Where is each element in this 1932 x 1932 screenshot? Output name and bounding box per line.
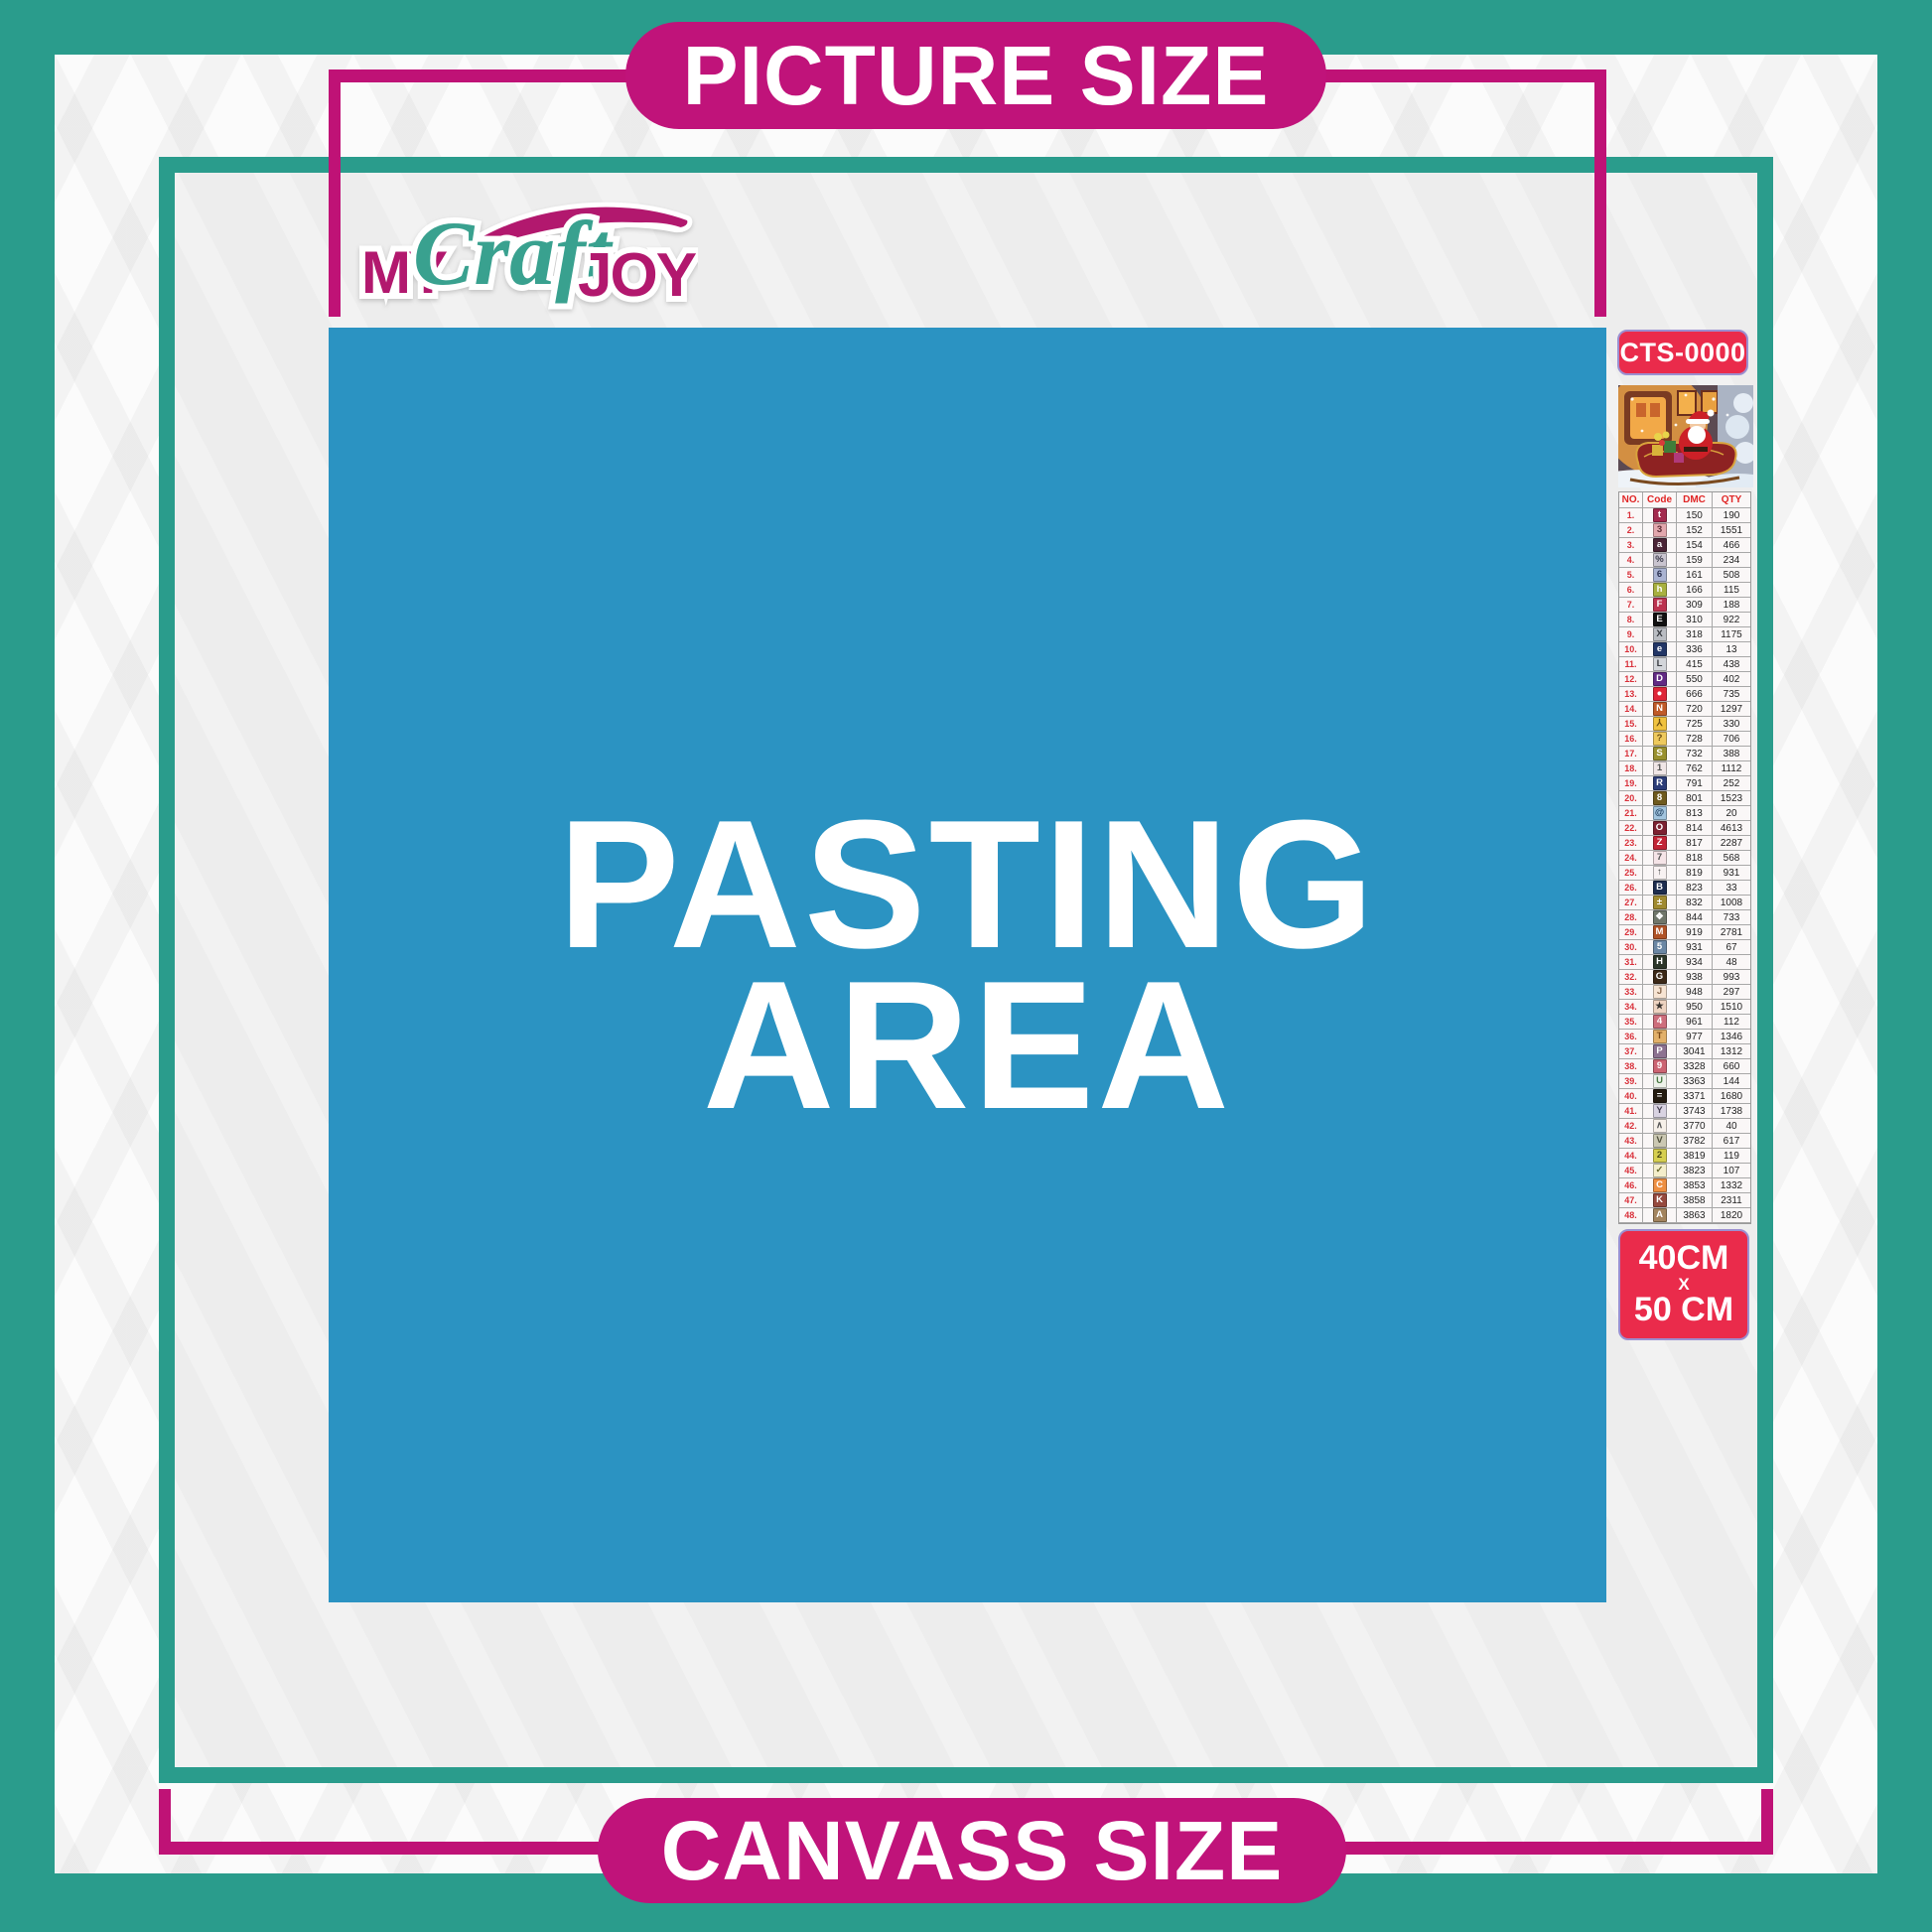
legend-cell-qty: 1112 [1713, 761, 1750, 776]
legend-header-code: Code [1643, 492, 1677, 508]
symbol-swatch: 2 [1653, 1149, 1667, 1163]
legend-row: 35.4961112 [1619, 1015, 1750, 1030]
legend-cell-dmc: 950 [1677, 1000, 1713, 1015]
legend-cell-qty: 2311 [1713, 1193, 1750, 1208]
legend-cell-code: ∧ [1643, 1119, 1677, 1134]
legend-cell-qty: 388 [1713, 747, 1750, 761]
legend-row: 7.F309188 [1619, 598, 1750, 613]
legend-cell-dmc: 844 [1677, 910, 1713, 925]
legend-row: 15.⅄725330 [1619, 717, 1750, 732]
legend-cell-dmc: 791 [1677, 776, 1713, 791]
legend-cell-no: 40. [1619, 1089, 1643, 1104]
legend-cell-dmc: 152 [1677, 523, 1713, 538]
legend-cell-no: 12. [1619, 672, 1643, 687]
symbol-swatch: Y [1653, 1104, 1667, 1118]
legend-cell-code: 1 [1643, 761, 1677, 776]
legend-cell-no: 17. [1619, 747, 1643, 761]
size-width: 40CM [1639, 1242, 1729, 1275]
legend-cell-qty: 297 [1713, 985, 1750, 1000]
legend-row: 24.7818568 [1619, 851, 1750, 866]
legend-cell-code: P [1643, 1044, 1677, 1059]
symbol-swatch: 7 [1653, 851, 1667, 865]
legend-cell-dmc: 823 [1677, 881, 1713, 896]
legend-cell-code: F [1643, 598, 1677, 613]
legend-cell-dmc: 666 [1677, 687, 1713, 702]
pasting-area-label-line2: AREA [703, 965, 1232, 1126]
symbol-swatch: % [1653, 553, 1667, 567]
legend-cell-code: A [1643, 1208, 1677, 1223]
legend-cell-qty: 33 [1713, 881, 1750, 896]
legend-cell-dmc: 550 [1677, 672, 1713, 687]
symbol-swatch: T [1653, 1030, 1667, 1043]
legend-cell-code: K [1643, 1193, 1677, 1208]
symbol-swatch: = [1653, 1089, 1667, 1103]
symbol-swatch: @ [1653, 806, 1667, 820]
legend-cell-no: 25. [1619, 866, 1643, 881]
legend-cell-qty: 568 [1713, 851, 1750, 866]
legend-cell-no: 31. [1619, 955, 1643, 970]
legend-row: 37.P30411312 [1619, 1044, 1750, 1059]
legend-cell-dmc: 832 [1677, 896, 1713, 910]
legend-cell-dmc: 813 [1677, 806, 1713, 821]
legend-cell-code: N [1643, 702, 1677, 717]
legend-cell-no: 22. [1619, 821, 1643, 836]
symbol-swatch: ❖ [1653, 910, 1667, 924]
legend-cell-no: 28. [1619, 910, 1643, 925]
legend-cell-qty: 40 [1713, 1119, 1750, 1134]
legend-cell-no: 1. [1619, 508, 1643, 523]
canvass-size-label: CANVASS SIZE [661, 1803, 1284, 1899]
symbol-swatch: ? [1653, 732, 1667, 746]
legend-cell-qty: 1312 [1713, 1044, 1750, 1059]
picture-frame-left-connector [329, 69, 628, 82]
symbol-swatch: G [1653, 970, 1667, 984]
legend-row: 31.H93448 [1619, 955, 1750, 970]
legend-cell-no: 33. [1619, 985, 1643, 1000]
legend-cell-no: 16. [1619, 732, 1643, 747]
legend-row: 41.Y37431738 [1619, 1104, 1750, 1119]
legend-cell-dmc: 3863 [1677, 1208, 1713, 1223]
legend-cell-dmc: 961 [1677, 1015, 1713, 1030]
legend-cell-qty: 48 [1713, 955, 1750, 970]
poster: PASTING AREA PICTURE SIZE CANVASS SIZE M… [0, 0, 1932, 1932]
legend-row: 6.h166115 [1619, 583, 1750, 598]
legend-header-row: NO. Code DMC QTY [1619, 492, 1750, 508]
legend-cell-dmc: 3328 [1677, 1059, 1713, 1074]
legend-cell-qty: 735 [1713, 687, 1750, 702]
legend-cell-code: ↑ [1643, 866, 1677, 881]
legend-cell-dmc: 720 [1677, 702, 1713, 717]
legend-cell-qty: 1738 [1713, 1104, 1750, 1119]
legend-cell-qty: 1346 [1713, 1030, 1750, 1044]
symbol-swatch: X [1653, 627, 1667, 641]
legend-cell-code: % [1643, 553, 1677, 568]
picture-frame-right-connector [1323, 69, 1606, 82]
symbol-swatch: h [1653, 583, 1667, 597]
symbol-swatch: ⅄ [1653, 717, 1667, 731]
canvass-size-banner: CANVASS SIZE [598, 1798, 1346, 1903]
symbol-swatch: e [1653, 642, 1667, 656]
legend-row: 13.●666735 [1619, 687, 1750, 702]
legend-cell-dmc: 150 [1677, 508, 1713, 523]
legend-cell-code: G [1643, 970, 1677, 985]
legend-cell-code: 6 [1643, 568, 1677, 583]
legend-cell-dmc: 3853 [1677, 1178, 1713, 1193]
legend-cell-qty: 733 [1713, 910, 1750, 925]
picture-frame-left-line [329, 69, 341, 317]
legend-cell-dmc: 948 [1677, 985, 1713, 1000]
picture-frame-right-line [1594, 69, 1606, 317]
canvas-size-badge: 40CM X 50 CM [1618, 1229, 1749, 1340]
legend-cell-code: V [1643, 1134, 1677, 1149]
legend-cell-no: 41. [1619, 1104, 1643, 1119]
legend-cell-code: h [1643, 583, 1677, 598]
legend-cell-dmc: 154 [1677, 538, 1713, 553]
legend-cell-code: 8 [1643, 791, 1677, 806]
legend-rows: 1.t1501902.315215513.a1544664.%1592345.6… [1619, 508, 1750, 1223]
legend-cell-no: 42. [1619, 1119, 1643, 1134]
symbol-swatch: 3 [1653, 523, 1667, 537]
legend-cell-qty: 1523 [1713, 791, 1750, 806]
legend-cell-dmc: 728 [1677, 732, 1713, 747]
legend-cell-no: 5. [1619, 568, 1643, 583]
legend-cell-code: 9 [1643, 1059, 1677, 1074]
legend-row: 40.=33711680 [1619, 1089, 1750, 1104]
legend-cell-code: M [1643, 925, 1677, 940]
legend-cell-no: 11. [1619, 657, 1643, 672]
legend-cell-no: 35. [1619, 1015, 1643, 1030]
symbol-swatch: ★ [1653, 1000, 1667, 1014]
legend-cell-qty: 617 [1713, 1134, 1750, 1149]
brand-logo: MY Craft JOY [355, 179, 698, 318]
legend-cell-qty: 1008 [1713, 896, 1750, 910]
symbol-swatch: 9 [1653, 1059, 1667, 1073]
legend-cell-qty: 144 [1713, 1074, 1750, 1089]
legend-cell-code: 3 [1643, 523, 1677, 538]
legend-cell-dmc: 817 [1677, 836, 1713, 851]
legend-cell-dmc: 159 [1677, 553, 1713, 568]
symbol-swatch: Z [1653, 836, 1667, 850]
legend-cell-dmc: 336 [1677, 642, 1713, 657]
symbol-swatch: 8 [1653, 791, 1667, 805]
legend-row: 14.N7201297 [1619, 702, 1750, 717]
legend-cell-qty: 13 [1713, 642, 1750, 657]
legend-cell-no: 18. [1619, 761, 1643, 776]
legend-cell-dmc: 318 [1677, 627, 1713, 642]
symbol-swatch: L [1653, 657, 1667, 671]
symbol-swatch: S [1653, 747, 1667, 760]
legend-row: 17.S732388 [1619, 747, 1750, 761]
legend-cell-dmc: 161 [1677, 568, 1713, 583]
legend-cell-no: 47. [1619, 1193, 1643, 1208]
legend-cell-dmc: 3371 [1677, 1089, 1713, 1104]
legend-row: 22.O8144613 [1619, 821, 1750, 836]
legend-row: 46.C38531332 [1619, 1178, 1750, 1193]
legend-cell-dmc: 762 [1677, 761, 1713, 776]
logo-word-joy: JOY [578, 241, 697, 310]
legend-cell-qty: 2781 [1713, 925, 1750, 940]
legend-row: 16.?728706 [1619, 732, 1750, 747]
legend-cell-qty: 1820 [1713, 1208, 1750, 1223]
legend-row: 12.D550402 [1619, 672, 1750, 687]
symbol-swatch: C [1653, 1178, 1667, 1192]
legend-cell-no: 45. [1619, 1164, 1643, 1178]
legend-cell-dmc: 310 [1677, 613, 1713, 627]
legend-cell-code: t [1643, 508, 1677, 523]
legend-cell-code: L [1643, 657, 1677, 672]
symbol-swatch: ↑ [1653, 866, 1667, 880]
legend-cell-no: 9. [1619, 627, 1643, 642]
picture-size-banner: PICTURE SIZE [625, 22, 1326, 129]
legend-cell-qty: 20 [1713, 806, 1750, 821]
legend-cell-code: Y [1643, 1104, 1677, 1119]
legend-row: 11.L415438 [1619, 657, 1750, 672]
legend-cell-code: B [1643, 881, 1677, 896]
legend-cell-qty: 67 [1713, 940, 1750, 955]
legend-cell-dmc: 919 [1677, 925, 1713, 940]
symbol-swatch: F [1653, 598, 1667, 612]
legend-cell-dmc: 3041 [1677, 1044, 1713, 1059]
legend-cell-qty: 1551 [1713, 523, 1750, 538]
legend-cell-code: e [1643, 642, 1677, 657]
legend-cell-qty: 438 [1713, 657, 1750, 672]
legend-cell-dmc: 977 [1677, 1030, 1713, 1044]
legend-cell-code: ✓ [1643, 1164, 1677, 1178]
legend-cell-dmc: 3782 [1677, 1134, 1713, 1149]
legend-row: 26.B82333 [1619, 881, 1750, 896]
legend-cell-qty: 402 [1713, 672, 1750, 687]
legend-row: 2.31521551 [1619, 523, 1750, 538]
legend-cell-qty: 188 [1713, 598, 1750, 613]
legend-cell-no: 20. [1619, 791, 1643, 806]
legend-row: 29.M9192781 [1619, 925, 1750, 940]
symbol-swatch: 5 [1653, 940, 1667, 954]
legend-cell-no: 48. [1619, 1208, 1643, 1223]
legend-cell-dmc: 934 [1677, 955, 1713, 970]
legend-cell-code: O [1643, 821, 1677, 836]
legend-cell-no: 10. [1619, 642, 1643, 657]
legend-cell-no: 44. [1619, 1149, 1643, 1164]
legend-cell-code: 4 [1643, 1015, 1677, 1030]
legend-row: 21.@81320 [1619, 806, 1750, 821]
legend-cell-no: 27. [1619, 896, 1643, 910]
legend-cell-no: 14. [1619, 702, 1643, 717]
legend-header-qty: QTY [1713, 492, 1750, 508]
legend-cell-dmc: 725 [1677, 717, 1713, 732]
legend-cell-no: 23. [1619, 836, 1643, 851]
legend-row: 33.J948297 [1619, 985, 1750, 1000]
symbol-swatch: H [1653, 955, 1667, 969]
legend-row: 42.∧377040 [1619, 1119, 1750, 1134]
legend-cell-no: 8. [1619, 613, 1643, 627]
legend-cell-code: ? [1643, 732, 1677, 747]
legend-row: 19.R791252 [1619, 776, 1750, 791]
legend-cell-code: 5 [1643, 940, 1677, 955]
symbol-swatch: ∧ [1653, 1119, 1667, 1133]
legend-cell-dmc: 166 [1677, 583, 1713, 598]
legend-cell-code: ★ [1643, 1000, 1677, 1015]
legend-row: 28.❖844733 [1619, 910, 1750, 925]
symbol-swatch: O [1653, 821, 1667, 835]
legend-cell-qty: 119 [1713, 1149, 1750, 1164]
legend-cell-qty: 115 [1713, 583, 1750, 598]
picture-size-label: PICTURE SIZE [683, 28, 1270, 124]
legend-cell-dmc: 818 [1677, 851, 1713, 866]
legend-row: 47.K38582311 [1619, 1193, 1750, 1208]
legend-row: 36.T9771346 [1619, 1030, 1750, 1044]
legend-cell-code: 2 [1643, 1149, 1677, 1164]
symbol-swatch: N [1653, 702, 1667, 716]
legend-cell-dmc: 732 [1677, 747, 1713, 761]
legend-cell-dmc: 3858 [1677, 1193, 1713, 1208]
product-code: CTS-0000 [1619, 338, 1745, 368]
legend-cell-qty: 252 [1713, 776, 1750, 791]
legend-row: 30.593167 [1619, 940, 1750, 955]
legend-cell-code: C [1643, 1178, 1677, 1193]
legend-cell-no: 26. [1619, 881, 1643, 896]
legend-cell-dmc: 3770 [1677, 1119, 1713, 1134]
legend-row: 32.G938993 [1619, 970, 1750, 985]
legend-cell-no: 46. [1619, 1178, 1643, 1193]
pasting-area: PASTING AREA [329, 328, 1606, 1602]
legend-cell-qty: 107 [1713, 1164, 1750, 1178]
legend-cell-code: D [1643, 672, 1677, 687]
legend-cell-qty: 1175 [1713, 627, 1750, 642]
legend-cell-dmc: 801 [1677, 791, 1713, 806]
legend-cell-qty: 508 [1713, 568, 1750, 583]
legend-row: 48.A38631820 [1619, 1208, 1750, 1223]
symbol-swatch: K [1653, 1193, 1667, 1207]
legend-header-no: NO. [1619, 492, 1643, 508]
symbol-swatch: a [1653, 538, 1667, 552]
legend-cell-code: @ [1643, 806, 1677, 821]
legend-cell-qty: 660 [1713, 1059, 1750, 1074]
symbol-swatch: E [1653, 613, 1667, 626]
legend-row: 44.23819119 [1619, 1149, 1750, 1164]
symbol-swatch: D [1653, 672, 1667, 686]
legend-cell-code: J [1643, 985, 1677, 1000]
legend-row: 23.Z8172287 [1619, 836, 1750, 851]
symbol-swatch: B [1653, 881, 1667, 895]
legend-cell-no: 4. [1619, 553, 1643, 568]
symbol-swatch: M [1653, 925, 1667, 939]
symbol-swatch: J [1653, 985, 1667, 999]
legend-cell-qty: 922 [1713, 613, 1750, 627]
legend-row: 10.e33613 [1619, 642, 1750, 657]
legend-cell-no: 38. [1619, 1059, 1643, 1074]
legend-cell-dmc: 415 [1677, 657, 1713, 672]
legend-row: 1.t150190 [1619, 508, 1750, 523]
legend-cell-qty: 330 [1713, 717, 1750, 732]
legend-cell-no: 19. [1619, 776, 1643, 791]
legend-row: 43.V3782617 [1619, 1134, 1750, 1149]
legend-cell-code: Z [1643, 836, 1677, 851]
legend-cell-code: ❖ [1643, 910, 1677, 925]
legend-cell-code: ⅄ [1643, 717, 1677, 732]
symbol-swatch: U [1653, 1074, 1667, 1088]
legend-row: 25.↑819931 [1619, 866, 1750, 881]
legend-cell-qty: 1680 [1713, 1089, 1750, 1104]
legend-cell-dmc: 3823 [1677, 1164, 1713, 1178]
legend-row: 4.%159234 [1619, 553, 1750, 568]
symbol-swatch: P [1653, 1044, 1667, 1058]
pasting-area-label-line1: PASTING [558, 804, 1377, 965]
symbol-swatch: 1 [1653, 761, 1667, 775]
legend-cell-code: X [1643, 627, 1677, 642]
legend-row: 27.±8321008 [1619, 896, 1750, 910]
symbol-swatch: ✓ [1653, 1164, 1667, 1177]
legend-cell-dmc: 938 [1677, 970, 1713, 985]
legend-cell-no: 6. [1619, 583, 1643, 598]
symbol-swatch: A [1653, 1208, 1667, 1222]
legend-cell-no: 3. [1619, 538, 1643, 553]
legend-cell-no: 29. [1619, 925, 1643, 940]
legend-cell-no: 37. [1619, 1044, 1643, 1059]
symbol-swatch: ● [1653, 687, 1667, 701]
legend-row: 8.E310922 [1619, 613, 1750, 627]
legend-cell-no: 2. [1619, 523, 1643, 538]
canvass-frame-right-connector [1344, 1842, 1773, 1855]
legend-cell-qty: 931 [1713, 866, 1750, 881]
symbol-swatch: 6 [1653, 568, 1667, 582]
legend-cell-code: = [1643, 1089, 1677, 1104]
legend-cell-dmc: 309 [1677, 598, 1713, 613]
symbol-swatch: V [1653, 1134, 1667, 1148]
symbol-swatch: R [1653, 776, 1667, 790]
legend-cell-dmc: 819 [1677, 866, 1713, 881]
legend-header-dmc: DMC [1677, 492, 1713, 508]
legend-cell-no: 24. [1619, 851, 1643, 866]
legend-cell-dmc: 3363 [1677, 1074, 1713, 1089]
symbol-swatch: t [1653, 508, 1667, 522]
legend-cell-no: 7. [1619, 598, 1643, 613]
color-legend-table: NO. Code DMC QTY 1.t1501902.315215513.a1… [1618, 491, 1751, 1224]
legend-cell-code: T [1643, 1030, 1677, 1044]
canvass-frame-left-connector [159, 1842, 602, 1855]
legend-row: 45.✓3823107 [1619, 1164, 1750, 1178]
legend-cell-qty: 112 [1713, 1015, 1750, 1030]
legend-cell-no: 32. [1619, 970, 1643, 985]
legend-cell-qty: 466 [1713, 538, 1750, 553]
symbol-swatch: 4 [1653, 1015, 1667, 1029]
legend-row: 3.a154466 [1619, 538, 1750, 553]
legend-cell-no: 15. [1619, 717, 1643, 732]
legend-cell-no: 36. [1619, 1030, 1643, 1044]
legend-cell-qty: 1510 [1713, 1000, 1750, 1015]
design-preview-thumbnail [1618, 385, 1753, 487]
legend-row: 5.6161508 [1619, 568, 1750, 583]
legend-row: 20.88011523 [1619, 791, 1750, 806]
legend-row: 34.★9501510 [1619, 1000, 1750, 1015]
legend-cell-qty: 4613 [1713, 821, 1750, 836]
legend-cell-no: 13. [1619, 687, 1643, 702]
legend-cell-code: H [1643, 955, 1677, 970]
legend-cell-code: S [1643, 747, 1677, 761]
legend-cell-code: R [1643, 776, 1677, 791]
legend-cell-dmc: 931 [1677, 940, 1713, 955]
legend-cell-no: 30. [1619, 940, 1643, 955]
legend-cell-qty: 706 [1713, 732, 1750, 747]
symbol-swatch: ± [1653, 896, 1667, 909]
legend-cell-no: 39. [1619, 1074, 1643, 1089]
legend-cell-code: ● [1643, 687, 1677, 702]
legend-cell-no: 21. [1619, 806, 1643, 821]
legend-cell-qty: 993 [1713, 970, 1750, 985]
legend-cell-code: U [1643, 1074, 1677, 1089]
product-code-badge: CTS-0000 [1617, 330, 1748, 375]
legend-cell-qty: 2287 [1713, 836, 1750, 851]
legend-cell-no: 43. [1619, 1134, 1643, 1149]
